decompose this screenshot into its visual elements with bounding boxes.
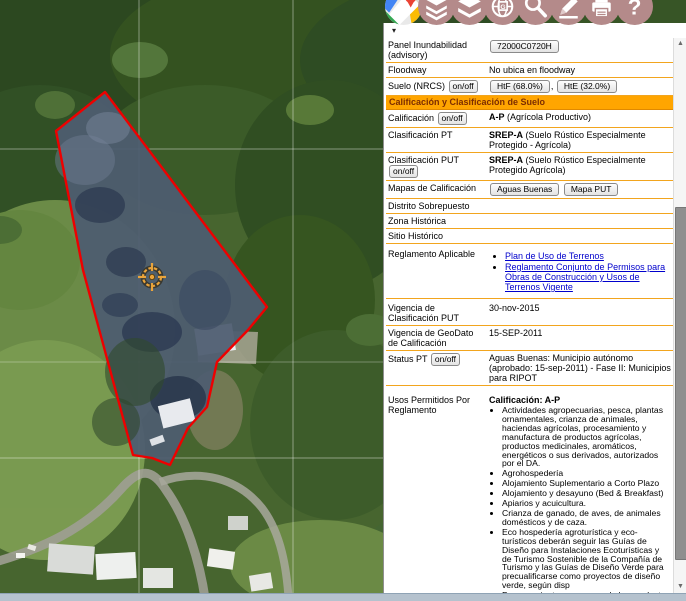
row-label-text: Suelo (NRCS) (388, 81, 445, 91)
row-value: Aguas Buenas: Municipio autónomo (aproba… (487, 352, 671, 384)
usos-list-item: Agrohospedería (502, 469, 671, 478)
link[interactable]: Reglamento Conjunto de Permisos para Obr… (505, 262, 665, 292)
svg-text:?: ? (628, 0, 642, 20)
row-label-text: Calificación (388, 113, 434, 123)
row-label: Vigencia de Clasificación PUT (388, 302, 487, 324)
soil-hte-button[interactable]: HtE (32.0%) (557, 80, 617, 93)
table-row-sitio: Sitio Histórico (386, 229, 673, 244)
search-icon (517, 0, 554, 25)
panel-collapse-arrow[interactable]: ▾ (384, 23, 686, 38)
clasificacion-put-toggle-button[interactable]: on/off (389, 165, 418, 178)
usos-list-item: Crianza de ganado, de aves, de animales … (502, 509, 671, 527)
row-label: Panel Inundabilidad (advisory) (388, 39, 487, 61)
table-row-vigencia-geodato: Vigencia de GeoDato de Calificación 15-S… (386, 326, 673, 351)
table-row-usos: Usos Permitidos Por Reglamento Calificac… (386, 386, 673, 593)
row-value: SREP-A (Suelo Rústico Especialmente Prot… (487, 129, 671, 151)
usos-list-item: Actividades agropecuarias, pesca, planta… (502, 406, 671, 468)
clasificacion-put-code: SREP-A (489, 155, 523, 165)
panel-content[interactable]: Panel Inundabilidad (advisory) 72000C072… (384, 38, 673, 593)
table-row-vigencia-put: Vigencia de Clasificación PUT 30-nov-201… (386, 299, 673, 326)
row-label: Clasificación PUT on/off (388, 154, 487, 179)
search-button[interactable] (517, 0, 554, 25)
print-button[interactable] (583, 0, 620, 25)
row-label: Distrito Sobrepuesto (388, 200, 487, 212)
scrollbar-thumb[interactable] (675, 207, 686, 560)
calificacion-code: A-P (489, 112, 505, 122)
scroll-down-arrow[interactable]: ▼ (674, 581, 686, 593)
row-label: Calificación on/off (388, 111, 487, 126)
section-header: Calificación y Clasificación de Suelo (386, 96, 673, 110)
row-value: 15-SEP-2011 (487, 327, 671, 349)
suelo-toggle-button[interactable]: on/off (449, 80, 478, 93)
usos-list-item: Eco hospedería agroturística y eco-turís… (502, 528, 671, 590)
layers-button[interactable] (418, 0, 455, 25)
help-button[interactable]: ? (616, 0, 653, 25)
row-label: Reglamento Aplicable (388, 248, 487, 295)
table-row-floodway: Floodway No ubica en floodway (386, 63, 673, 78)
soil-htf-button[interactable]: HtF (68.0%) (490, 80, 550, 93)
usos-title: Calificación: A-P (489, 395, 671, 405)
table-row-clasificacion-pt: Clasificación PT SREP-A (Suelo Rústico E… (386, 128, 673, 153)
usos-list-item: Alojamiento Suplementario a Corto Plazo (502, 479, 671, 488)
draw-button[interactable] (550, 0, 587, 25)
reglamento-link[interactable]: Reglamento Conjunto de Permisos para Obr… (505, 262, 671, 292)
link[interactable]: Plan de Uso de Terrenos (505, 251, 604, 261)
calificacion-toggle-button[interactable]: on/off (438, 112, 467, 125)
table-row-reglamento: Reglamento Aplicable Plan de Uso de Terr… (386, 244, 673, 299)
row-label-text: Status PT (388, 354, 427, 364)
row-label: Suelo (NRCS) on/off (388, 79, 487, 94)
row-value: SREP-A (Suelo Rústico Especialmente Prot… (487, 154, 671, 179)
row-label: Zona Histórica (388, 215, 487, 227)
table-row-status-pt: Status PT on/off Aguas Buenas: Municipio… (386, 351, 673, 386)
usos-list: Actividades agropecuarias, pesca, planta… (489, 406, 671, 593)
row-label: Floodway (388, 64, 487, 76)
flood-panel-button[interactable]: 72000C0720H (490, 40, 559, 53)
mapa-aguas-buenas-button[interactable]: Aguas Buenas (490, 183, 559, 196)
globe-button[interactable]: G (484, 0, 521, 25)
layers-alt-button[interactable] (451, 0, 488, 25)
globe-icon: G (484, 0, 521, 25)
usos-list-item: Alojamiento y desayuno (Bed & Breakfast) (502, 489, 671, 498)
calificacion-desc: (Agrícola Productivo) (505, 112, 592, 122)
table-row-suelo: Suelo (NRCS) on/off HtF (68.0%), HtE (32… (386, 78, 673, 96)
table-row-zona: Zona Histórica (386, 214, 673, 229)
row-label: Usos Permitidos Por Reglamento (388, 394, 487, 593)
clasificacion-pt-code: SREP-A (489, 130, 523, 140)
map-toolbar: G ? (385, 0, 649, 25)
layers-alt-icon (451, 0, 488, 25)
print-icon (583, 0, 620, 25)
draw-icon (550, 0, 587, 25)
attribute-panel: ▾ Panel Inundabilidad (advisory) 72000C0… (383, 23, 686, 593)
reglamento-links: Plan de Uso de TerrenosReglamento Conjun… (489, 251, 671, 292)
table-row-inundabilidad: Panel Inundabilidad (advisory) 72000C072… (386, 38, 673, 63)
row-label-text: Clasificación PUT (388, 155, 459, 165)
layers-icon (418, 0, 455, 25)
usos-list-item: Apiarios y acuicultura. (502, 499, 671, 508)
usos-list-item: Procesamiento y empaque de los productos… (502, 591, 671, 593)
svg-text:G: G (500, 4, 505, 11)
row-label: Clasificación PT (388, 129, 487, 151)
panel-scrollbar[interactable]: ▲ ▼ (673, 38, 686, 593)
row-value: 30-nov-2015 (487, 302, 671, 324)
row-label: Mapas de Calificación (388, 182, 487, 197)
row-value: A-P (Agrícola Productivo) (487, 111, 671, 126)
table-row-distrito: Distrito Sobrepuesto (386, 199, 673, 214)
table-row-calificacion: Calificación on/off A-P (Agrícola Produc… (386, 110, 673, 128)
table-row-mapas: Mapas de Calificación Aguas Buenas Mapa … (386, 181, 673, 199)
mapa-put-button[interactable]: Mapa PUT (564, 183, 619, 196)
table-row-clasificacion-put: Clasificación PUT on/off SREP-A (Suelo R… (386, 153, 673, 181)
scroll-up-arrow[interactable]: ▲ (674, 38, 686, 50)
basemap-icon (385, 0, 422, 25)
row-value: No ubica en floodway (487, 64, 671, 76)
basemap-button[interactable] (385, 0, 422, 25)
comma-separator: , (551, 81, 554, 91)
reglamento-link[interactable]: Plan de Uso de Terrenos (505, 251, 671, 261)
row-label: Vigencia de GeoDato de Calificación (388, 327, 487, 349)
row-label: Sitio Histórico (388, 230, 487, 242)
help-icon: ? (616, 0, 653, 25)
status-pt-toggle-button[interactable]: on/off (431, 353, 460, 366)
row-label: Status PT on/off (388, 352, 487, 384)
